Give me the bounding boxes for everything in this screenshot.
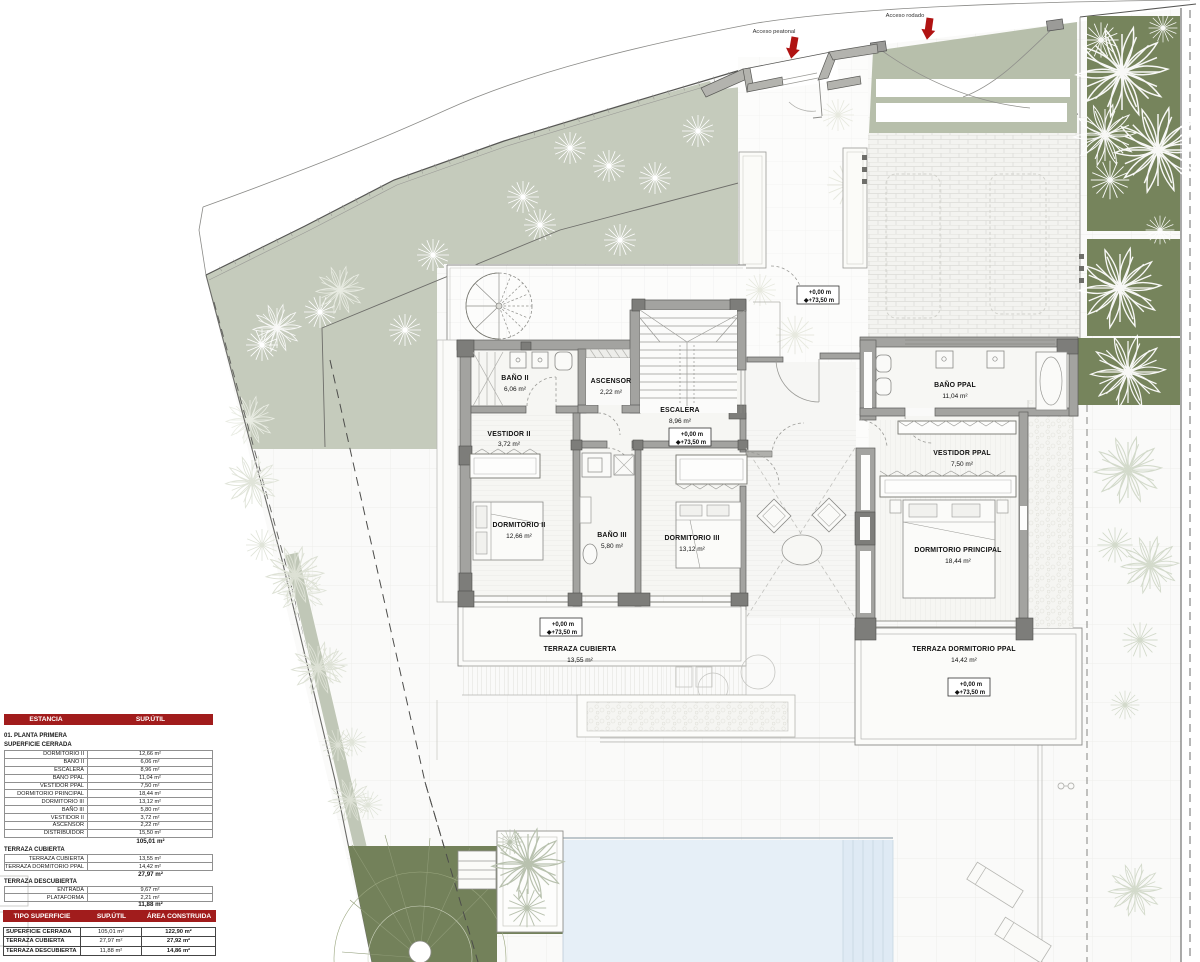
svg-text:Acceso rodado: Acceso rodado [886, 13, 925, 19]
svg-text:TERRAZA CUBIERTA: TERRAZA CUBIERTA [544, 646, 617, 653]
svg-text:18,44 m²: 18,44 m² [945, 558, 971, 565]
svg-text:◆+73,50 m: ◆+73,50 m [803, 297, 834, 304]
svg-text:◆+73,50 m: ◆+73,50 m [675, 439, 706, 446]
svg-text:VESTIDOR PPAL: VESTIDOR PPAL [933, 450, 991, 457]
svg-text:DORMITORIO PRINCIPAL: DORMITORIO PRINCIPAL [914, 547, 1001, 554]
svg-text:+0,00 m: +0,00 m [809, 290, 831, 296]
svg-text:◆+73,50 m: ◆+73,50 m [546, 629, 577, 636]
svg-text:11,04 m²: 11,04 m² [942, 393, 968, 400]
svg-text:ASCENSOR: ASCENSOR [591, 378, 632, 385]
svg-text:VESTIDOR II: VESTIDOR II [487, 431, 530, 438]
svg-text:+0,00 m: +0,00 m [681, 432, 703, 438]
svg-text:13,55 m²: 13,55 m² [567, 657, 593, 664]
svg-text:6,06 m²: 6,06 m² [504, 386, 527, 393]
svg-text:14,42 m²: 14,42 m² [951, 657, 977, 664]
svg-text:7,50 m²: 7,50 m² [951, 461, 974, 468]
svg-text:◆+73,50 m: ◆+73,50 m [954, 689, 985, 696]
svg-text:BAÑO PPAL: BAÑO PPAL [934, 380, 976, 389]
svg-text:BAÑO II: BAÑO II [501, 373, 528, 382]
svg-text:13,12 m²: 13,12 m² [679, 546, 705, 553]
svg-text:2,22 m²: 2,22 m² [600, 389, 623, 396]
svg-text:DORMITORIO III: DORMITORIO III [664, 535, 719, 542]
svg-text:8,96 m²: 8,96 m² [669, 418, 692, 425]
svg-text:12,66 m²: 12,66 m² [506, 533, 532, 540]
svg-text:+0,00 m: +0,00 m [552, 622, 574, 628]
svg-text:5,80 m²: 5,80 m² [601, 543, 624, 550]
svg-text:TERRAZA DORMITORIO PPAL: TERRAZA DORMITORIO PPAL [912, 646, 1016, 653]
svg-text:ESCALERA: ESCALERA [660, 407, 700, 414]
svg-text:3,72 m²: 3,72 m² [498, 441, 521, 448]
svg-text:DORMITORIO II: DORMITORIO II [492, 522, 545, 529]
svg-text:BAÑO III: BAÑO III [597, 530, 627, 539]
svg-text:+0,00 m: +0,00 m [960, 682, 982, 688]
svg-text:Acceso peatonal: Acceso peatonal [753, 29, 796, 35]
